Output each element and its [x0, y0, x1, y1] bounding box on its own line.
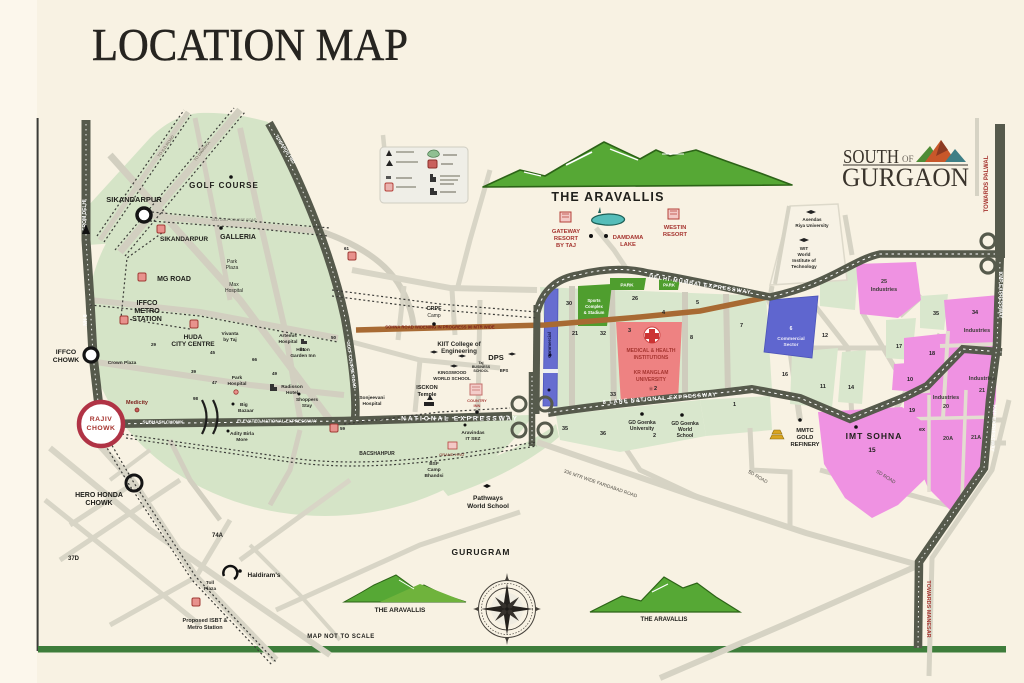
svg-text:PARK: PARK [663, 283, 676, 288]
svg-text:Sector: Sector [784, 342, 799, 348]
svg-text:CITY CENTRE: CITY CENTRE [171, 341, 215, 348]
svg-text:Technology: Technology [791, 264, 817, 269]
svg-text:ex: ex [919, 427, 926, 433]
svg-text:WESTIN: WESTIN [664, 225, 687, 231]
svg-text:Medicity: Medicity [126, 400, 149, 406]
svg-text:THE ARAVALLIS: THE ARAVALLIS [641, 617, 688, 623]
svg-text:Hospital: Hospital [363, 401, 382, 407]
svg-text:10: 10 [907, 377, 913, 383]
svg-text:DAMDAMA: DAMDAMA [613, 235, 644, 241]
svg-text:Artemis: Artemis [279, 333, 297, 339]
svg-text:OLD GOLF COURSE ROAD: OLD GOLF COURSE ROAD [212, 218, 257, 222]
svg-text:Bhandsi: Bhandsi [425, 473, 444, 479]
svg-text:GOLF COURSE: GOLF COURSE [189, 181, 259, 190]
svg-text:RAJIV: RAJIV [90, 416, 113, 423]
svg-text:12: 12 [822, 333, 828, 339]
svg-text:33: 33 [610, 392, 616, 398]
svg-text:Stay: Stay [302, 403, 312, 409]
svg-text:School: School [677, 433, 694, 439]
svg-text:Asendas: Asendas [802, 217, 822, 222]
svg-text:RESORT: RESORT [663, 232, 688, 238]
svg-text:WORLD SCHOOL: WORLD SCHOOL [433, 376, 471, 381]
svg-text:DPS: DPS [488, 353, 503, 362]
svg-text:World: World [798, 252, 811, 257]
svg-text:11: 11 [820, 384, 826, 390]
svg-text:CHOWK: CHOWK [53, 357, 80, 364]
svg-text:PARK: PARK [620, 283, 634, 289]
svg-text:17: 17 [896, 344, 902, 350]
svg-text:Sports: Sports [587, 298, 601, 303]
svg-text:Crown Plaza: Crown Plaza [108, 360, 137, 366]
svg-text:Toll: Toll [206, 580, 214, 586]
svg-text:18: 18 [929, 351, 935, 357]
svg-text:CHOWK: CHOWK [85, 500, 112, 507]
svg-text:INSTITUTIONS: INSTITUTIONS [634, 355, 669, 361]
svg-text:16: 16 [782, 372, 788, 378]
svg-text:GRAND HYAT: GRAND HYAT [439, 452, 465, 457]
svg-text:47: 47 [212, 380, 218, 385]
svg-text:6: 6 [790, 326, 793, 332]
svg-text:29: 29 [151, 342, 157, 347]
svg-text:Institute of: Institute of [792, 258, 816, 263]
svg-text:Engineering: Engineering [441, 348, 477, 355]
svg-text:36: 36 [600, 431, 606, 437]
svg-text:SIKANDARPUR: SIKANDARPUR [160, 236, 208, 243]
svg-text:5: 5 [696, 300, 699, 306]
svg-text:1: 1 [733, 402, 736, 408]
svg-text:University: University [630, 426, 654, 432]
svg-text:2: 2 [654, 386, 657, 392]
svg-text:METRO: METRO [134, 308, 160, 315]
svg-text:15: 15 [868, 447, 876, 454]
svg-text:NH 8: NH 8 [83, 314, 89, 326]
svg-text:19: 19 [909, 408, 915, 414]
svg-text:BPS: BPS [500, 368, 509, 373]
svg-text:74A: 74A [212, 533, 224, 539]
svg-text:98: 98 [193, 396, 199, 401]
svg-text:Adity Birla: Adity Birla [230, 431, 254, 437]
svg-text:26: 26 [632, 296, 638, 302]
svg-text:KINGSWOOD: KINGSWOOD [438, 370, 467, 375]
svg-text:STATION: STATION [132, 316, 162, 323]
svg-text:TOWARDS PALWAL: TOWARDS PALWAL [984, 155, 990, 212]
svg-text:& Stadium: & Stadium [584, 310, 605, 315]
svg-text:14: 14 [848, 385, 855, 391]
svg-text:Sonjeevani: Sonjeevani [359, 395, 384, 401]
svg-text:3: 3 [628, 328, 631, 334]
svg-text:Haldiram's: Haldiram's [248, 572, 281, 579]
svg-text:MAP NOT TO SCALE: MAP NOT TO SCALE [307, 634, 374, 640]
svg-text:Hospital: Hospital [225, 288, 243, 294]
svg-text:Proposed ISBT &: Proposed ISBT & [183, 618, 228, 624]
svg-text:21A: 21A [971, 435, 981, 441]
svg-text:BY TAJ: BY TAJ [556, 243, 576, 249]
svg-text:Industries: Industries [969, 376, 995, 382]
svg-text:49: 49 [272, 371, 278, 376]
svg-text:21: 21 [572, 331, 578, 337]
svg-text:UNIVERSITY: UNIVERSITY [636, 377, 667, 383]
svg-text:IFFCO: IFFCO [137, 300, 159, 307]
svg-text:Commercial: Commercial [547, 332, 552, 358]
svg-text:Shoppers: Shoppers [296, 397, 318, 403]
svg-text:39: 39 [191, 369, 197, 374]
svg-text:NATIONAL EXPRESSWAY: NATIONAL EXPRESSWAY [401, 416, 519, 423]
svg-text:Metro Station: Metro Station [187, 625, 223, 631]
svg-text:SIKANDARPUR: SIKANDARPUR [106, 195, 162, 204]
svg-text:Industries: Industries [871, 287, 897, 293]
svg-text:7: 7 [740, 323, 743, 329]
svg-text:WIT: WIT [800, 246, 809, 251]
svg-text:BSF: BSF [429, 461, 439, 467]
svg-text:IFFCO: IFFCO [56, 349, 76, 356]
svg-text:World School: World School [467, 503, 509, 510]
svg-text:MEDICAL & HEALTH: MEDICAL & HEALTH [627, 348, 676, 354]
svg-text:2: 2 [653, 433, 656, 439]
svg-text:66: 66 [252, 357, 258, 362]
svg-text:Complex: Complex [585, 304, 603, 309]
svg-text:32: 32 [600, 331, 606, 337]
svg-text:20A: 20A [943, 436, 953, 442]
svg-text:61: 61 [344, 246, 350, 251]
svg-text:SOHNA ROAD WIDENING IN PROGRES: SOHNA ROAD WIDENING IN PROGRESS 90 MTR W… [385, 325, 495, 330]
svg-text:More: More [236, 437, 248, 443]
svg-text:KR MANGLAM: KR MANGLAM [634, 370, 669, 376]
svg-text:Hospital: Hospital [228, 381, 247, 387]
svg-text:IT SEZ: IT SEZ [466, 436, 481, 442]
svg-text:Plaza: Plaza [204, 586, 217, 592]
svg-text:RESORT: RESORT [554, 236, 579, 242]
svg-text:20: 20 [943, 404, 949, 410]
svg-text:GURUGRAM: GURUGRAM [452, 547, 511, 557]
svg-text:KMP EXPRESSWAY: KMP EXPRESSWAY [997, 272, 1003, 320]
svg-text:MMTC: MMTC [796, 428, 814, 434]
svg-text:25: 25 [881, 279, 887, 285]
svg-text:8: 8 [690, 335, 693, 341]
svg-text:59: 59 [340, 426, 346, 431]
svg-text:CHOWK: CHOWK [87, 425, 116, 432]
svg-text:Vivanta: Vivanta [222, 331, 239, 337]
svg-text:Industries: Industries [964, 328, 990, 334]
svg-text:GURGAON: GURGAON [842, 163, 969, 192]
svg-text:Temple: Temple [418, 392, 437, 398]
svg-text:Aravindas: Aravindas [461, 430, 485, 436]
svg-text:Big: Big [240, 402, 248, 408]
svg-text:Bazaar: Bazaar [238, 408, 254, 414]
svg-text:THE ARAVALLIS: THE ARAVALLIS [375, 607, 426, 614]
svg-text:45: 45 [210, 350, 216, 355]
svg-text:GALLERIA: GALLERIA [220, 234, 256, 241]
svg-text:Commercial: Commercial [777, 336, 804, 342]
svg-text:KIIT College of: KIIT College of [437, 341, 481, 348]
svg-text:FROM DELHI: FROM DELHI [82, 199, 88, 231]
svg-text:Hotel: Hotel [286, 390, 298, 396]
svg-text:GOLD: GOLD [797, 435, 814, 441]
svg-text:GATEWAY: GATEWAY [552, 229, 580, 235]
svg-text:IMT SOHNA: IMT SOHNA [846, 431, 903, 441]
svg-text:MG ROAD: MG ROAD [157, 276, 191, 283]
svg-text:CRPF: CRPF [427, 306, 443, 312]
svg-text:35: 35 [933, 311, 939, 317]
svg-text:34: 34 [972, 310, 979, 316]
svg-text:Radisson: Radisson [281, 384, 303, 390]
svg-text:by Taj: by Taj [223, 337, 237, 343]
svg-text:LAKE: LAKE [620, 242, 636, 248]
svg-text:INN: INN [474, 403, 481, 408]
svg-text:⚛: ⚛ [648, 386, 653, 393]
svg-text:Camp: Camp [427, 467, 440, 473]
svg-text:Plaza: Plaza [226, 265, 239, 271]
svg-text:Industries: Industries [933, 395, 959, 401]
svg-text:37D: 37D [68, 556, 80, 562]
svg-text:ELEVATED NATIONAL EXPRESSWAY: ELEVATED NATIONAL EXPRESSWAY [237, 419, 317, 424]
svg-text:51: 51 [300, 347, 306, 352]
svg-text:Hospital: Hospital [279, 339, 298, 345]
svg-text:Pathways: Pathways [473, 495, 503, 502]
svg-text:Park: Park [232, 375, 243, 381]
svg-text:BACSHAHPUR: BACSHAHPUR [359, 451, 395, 457]
svg-text:SUBHASH CHOWK: SUBHASH CHOWK [143, 420, 185, 425]
svg-text:HERO HONDA: HERO HONDA [75, 492, 123, 499]
svg-text:30: 30 [566, 301, 572, 307]
svg-text:TOWARDS MANESAR: TOWARDS MANESAR [925, 580, 931, 637]
svg-text:LOCATION MAP: LOCATION MAP [92, 19, 408, 70]
svg-text:21: 21 [979, 388, 985, 394]
svg-text:THE ARAVALLIS: THE ARAVALLIS [551, 190, 664, 204]
svg-text:SCHOOL: SCHOOL [473, 369, 489, 373]
svg-text:50: 50 [331, 335, 337, 340]
svg-text:Camp: Camp [427, 313, 441, 319]
svg-text:35: 35 [562, 426, 568, 432]
svg-text:Riya University: Riya University [795, 223, 829, 228]
svg-text:REFINERY: REFINERY [790, 442, 819, 448]
svg-text:HUDA: HUDA [184, 334, 203, 341]
svg-text:Garden Inn: Garden Inn [290, 353, 315, 359]
svg-text:ISCKON: ISCKON [416, 385, 437, 391]
